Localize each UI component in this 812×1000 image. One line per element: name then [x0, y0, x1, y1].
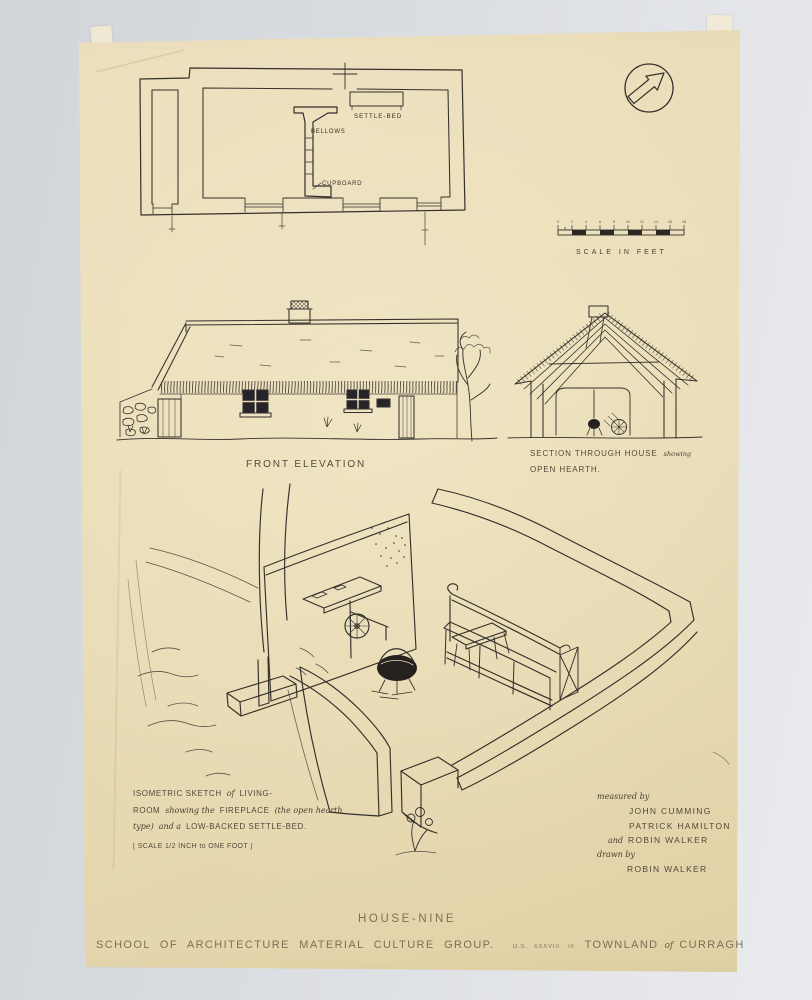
iso-note-line3: type) and a LOW-BACKED SETTLE-BED.	[133, 822, 307, 831]
ink-drawing-layer: SETTLE-BED BELLOWS CUPBOARD 0 2 4 6 8 10	[0, 0, 812, 1000]
svg-text:4: 4	[585, 220, 587, 224]
elev-tree	[455, 332, 490, 441]
svg-text:10: 10	[626, 220, 630, 224]
scale-bar-fills	[572, 230, 670, 235]
elev-stone-wall	[120, 389, 156, 437]
front-elevation-caption: FRONT ELEVATION	[246, 459, 366, 470]
iso-note-line2: ROOM showing the FIREPLACE (the open hea…	[133, 806, 343, 815]
section-caption-main: SECTION THROUGH HOUSE	[530, 449, 658, 458]
section-caption-showing: showing	[664, 450, 691, 458]
section-caption-line2: OPEN HEARTH.	[530, 465, 601, 474]
iso-note-script: of	[227, 789, 235, 798]
svg-text:14: 14	[654, 220, 658, 224]
elev-window-1	[240, 390, 271, 417]
iso-shelf-objects	[312, 585, 346, 598]
sheet-footer-line: SCHOOL OF ARCHITECTURE MATERIAL CULTURE …	[96, 939, 745, 951]
svg-text:12: 12	[640, 220, 644, 224]
credit-and: and	[608, 836, 623, 845]
iso-note-caps: ROOM	[133, 806, 160, 815]
iso-stool	[452, 623, 509, 670]
plan-dimension-ticks	[169, 212, 428, 245]
scale-bar-numbers: 0 2 4 6 8 10 12 14 16 18	[557, 220, 686, 224]
iso-note-script: showing the	[165, 806, 214, 815]
iso-note-caps: ISOMETRIC SKETCH	[133, 789, 222, 798]
plan-bellows-rungs	[305, 138, 313, 174]
scale-bar: 0 2 4 6 8 10 12 14 16 18 SCALE IN FEET	[557, 220, 686, 256]
sheet-title: HOUSE-NINE	[358, 913, 456, 925]
iso-pot	[377, 655, 417, 681]
svg-text:6: 6	[599, 220, 601, 224]
iso-wheel	[345, 614, 369, 638]
elev-thatch-fringe	[160, 381, 458, 393]
footer-org: SCHOOL OF ARCHITECTURE MATERIAL CULTURE …	[96, 939, 494, 951]
elev-roof-dashes	[215, 340, 444, 367]
iso-ground-scribbles	[128, 548, 729, 776]
elev-gate	[158, 399, 181, 437]
sec-ground	[508, 437, 702, 438]
footer-of: of	[665, 941, 674, 951]
elev-vent	[377, 399, 390, 407]
credit-measured-by: measured by	[597, 792, 649, 801]
sec-hearth	[556, 388, 630, 436]
credit-drawn-by: drawn by	[597, 850, 635, 859]
svg-text:8: 8	[613, 220, 615, 224]
iso-pot-legs	[372, 679, 415, 699]
credit-line-3: and ROBIN WALKER	[608, 835, 709, 845]
plan-label-cupboard: CUPBOARD	[322, 181, 362, 187]
photo-background: { "sheet": { "title": "HOUSE-NINE", "org…	[0, 0, 812, 1000]
elev-door	[399, 396, 414, 438]
credit-name-3: ROBIN WALKER	[628, 835, 708, 845]
footer-os-sheet: XXXVIII	[534, 944, 561, 950]
footer-curragh: CURRAGH	[679, 939, 744, 951]
svg-text:16: 16	[668, 220, 672, 224]
north-arrow-circle	[625, 64, 673, 112]
north-arrow-icon	[625, 64, 673, 112]
plan-inner-walls	[152, 88, 450, 204]
elev-roof-outline	[152, 319, 458, 390]
plan-back-door	[333, 63, 357, 89]
iso-note-caps: FIREPLACE	[220, 806, 270, 815]
front-elevation	[117, 301, 497, 441]
plan-label-settle-bed: SETTLE-BED	[354, 113, 402, 120]
plan-window-sills	[153, 203, 441, 208]
iso-far-right-walls	[432, 489, 697, 790]
iso-settle-bed	[444, 584, 578, 710]
elev-ground-line	[117, 438, 497, 440]
iso-note-caps: LIVING-	[240, 789, 273, 798]
iso-note-script: (the open hearth	[275, 806, 343, 815]
elev-window-2	[344, 390, 372, 413]
sec-roof-layers	[524, 318, 688, 404]
footer-townland: TOWNLAND	[585, 939, 659, 951]
section-caption-line1: SECTION THROUGH HOUSE showing	[530, 449, 691, 458]
north-arrow-pointer	[628, 73, 664, 104]
sec-collar-tie	[549, 362, 659, 364]
footer-os-ref: O.S.	[512, 944, 527, 950]
credit-name-2: PATRICK HAMILTON	[629, 821, 731, 831]
svg-text:2: 2	[571, 220, 573, 224]
iso-note-line1: ISOMETRIC SKETCH of LIVING-	[133, 789, 273, 798]
iso-note-script: and a	[159, 822, 181, 831]
iso-note-caps: LOW-BACKED SETTLE-BED.	[186, 822, 307, 831]
credit-name-1: JOHN CUMMING	[629, 806, 712, 816]
scale-bar-caption: SCALE IN FEET	[576, 249, 667, 256]
floor-plan: SETTLE-BED BELLOWS CUPBOARD	[140, 63, 465, 245]
footer-os-sub: in	[568, 944, 574, 950]
credit-name-4: ROBIN WALKER	[627, 864, 707, 874]
iso-note-script: type)	[133, 822, 154, 831]
iso-note-scale: [ SCALE 1/2 INCH to ONE FOOT ]	[133, 843, 253, 850]
house-section	[508, 306, 702, 438]
scale-bar-ticks	[558, 225, 684, 230]
photographed-drawing-sheet: SETTLE-BED BELLOWS CUPBOARD 0 2 4 6 8 10	[0, 0, 812, 1000]
svg-text:0: 0	[557, 220, 559, 224]
svg-text:18: 18	[682, 220, 686, 224]
plan-label-bellows: BELLOWS	[311, 129, 346, 135]
sec-chimney	[586, 306, 608, 348]
plan-settle-bed-outline	[350, 92, 403, 106]
